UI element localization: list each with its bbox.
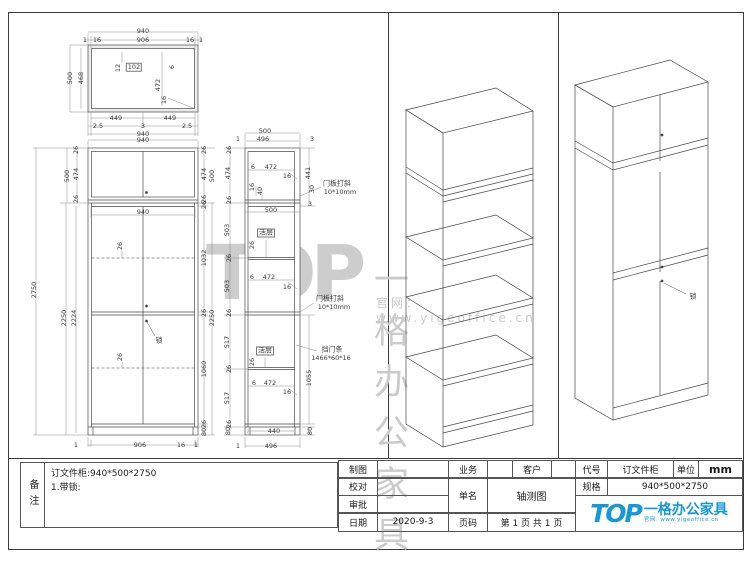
field-customer-label: 客户 <box>512 460 552 478</box>
dim-label: 1 <box>83 37 87 44</box>
dim-label: 26 <box>226 196 233 204</box>
dim-label: 门板打斜 <box>316 296 344 303</box>
dim-label: 80 <box>225 427 232 435</box>
dim-label: 1060 <box>201 361 208 378</box>
field-drafter-value <box>377 460 449 478</box>
dim-label: 503 <box>224 280 231 292</box>
dim-label: 活层 <box>257 229 275 238</box>
field-code-value: 订文件柜 <box>607 460 674 478</box>
notes-label: 备注 <box>21 463 45 527</box>
field-date-value: 2020-9-3 <box>377 513 449 533</box>
dim-label: 474 <box>201 168 208 180</box>
dim-label: 472 <box>155 79 162 91</box>
dim-label: 16 <box>177 442 185 449</box>
dim-label: 2.5 <box>93 123 103 130</box>
drawing-sheet: TOP 一格办公家具 官网：www.yigeoffice.cn <box>0 0 750 562</box>
dim-label: 12 <box>115 64 122 72</box>
dim-label: 16 <box>161 96 168 104</box>
field-approver-value <box>377 495 449 513</box>
dim-label: 496 <box>265 443 277 450</box>
dim-label: 26 <box>73 195 80 203</box>
dim-label: 10*10mm <box>324 189 356 196</box>
dim-label: 80 <box>201 428 208 436</box>
dim-label: 2750 <box>31 282 38 299</box>
dim-label: 468 <box>78 72 85 84</box>
dim-label: 1 <box>74 442 78 449</box>
company-logo-text: TOP <box>590 501 641 526</box>
dim-label: 挡门条 <box>322 347 343 354</box>
notes-box: 备注 订文件柜:940*500*2750 1.带锁: <box>20 462 338 528</box>
dim-label: 2250 <box>209 310 216 327</box>
dim-label: 6 <box>251 164 255 171</box>
dim-label: 活层 <box>256 347 274 356</box>
field-name-label: 单名 <box>448 478 488 514</box>
dim-label: 472 <box>264 380 276 387</box>
dim-label: 16 <box>249 183 256 191</box>
dim-label: 1032 <box>201 250 208 267</box>
notes-line-2: 1.带锁: <box>51 482 156 496</box>
dim-label: 3 <box>308 201 312 208</box>
dim-label: 26 <box>201 201 208 209</box>
dim-label: 16 <box>283 173 291 180</box>
dim-label: 26 <box>226 365 233 373</box>
dim-label: 517 <box>224 336 231 348</box>
dim-label: 500 <box>265 207 277 214</box>
dim-label: 门板打斜 <box>323 181 351 188</box>
dim-label: 26 <box>117 353 124 361</box>
field-code-label: 代号 <box>575 460 608 478</box>
dim-label: 26 <box>226 254 233 262</box>
dim-label: 940 <box>137 209 149 216</box>
dim-label: 500 <box>209 170 216 182</box>
dim-label: 449 <box>110 115 122 122</box>
notes-text: 订文件柜:940*500*2750 1.带锁: <box>51 468 156 495</box>
titleblock-logo-cell: TOP 一格办公家具 官网: www.yigeoffice.cn <box>575 495 743 532</box>
dim-label: 10*10mm <box>318 304 350 311</box>
dim-label: 1 <box>194 442 198 449</box>
dim-label: 503 <box>224 224 231 236</box>
dim-label: 440 <box>268 428 280 435</box>
dim-label: 30 <box>309 185 316 193</box>
field-business-value <box>487 460 513 478</box>
dim-label: 26 <box>117 242 124 250</box>
field-page-value: 第 1 页 共 1 页 <box>487 513 576 533</box>
dim-label: 16 <box>93 37 101 44</box>
dim-label: 40 <box>257 187 264 195</box>
dim-label: 26 <box>201 309 208 317</box>
dim-label: 锁 <box>156 338 163 345</box>
dim-label: 102 <box>126 63 142 72</box>
dim-label: 锁 <box>690 294 697 301</box>
field-unit-label: 单位 <box>673 460 699 478</box>
dim-label: 441 <box>305 167 312 179</box>
field-checker-value <box>377 478 449 496</box>
dim-label: 26 <box>201 146 208 154</box>
field-spec-value: 940*500*2750 <box>607 478 743 496</box>
dim-label: 1466*60*16 <box>311 355 351 362</box>
dim-label: 496 <box>257 136 269 143</box>
dim-label: 16 <box>186 37 194 44</box>
dim-label: 6 <box>169 65 176 69</box>
dim-label: 1 <box>199 37 203 44</box>
dim-label: 3 <box>141 123 145 130</box>
dim-label: 906 <box>134 442 146 449</box>
field-spec-label: 规格 <box>575 478 608 496</box>
field-checker-label: 校对 <box>338 478 378 496</box>
dim-label: 6 <box>250 274 254 281</box>
dim-label: 3 <box>310 136 314 143</box>
dim-label: 474 <box>73 168 80 180</box>
company-logo: TOP 一格办公家具 官网: www.yigeoffice.cn <box>590 501 728 526</box>
dim-label: 472 <box>265 164 277 171</box>
field-drafter-label: 制图 <box>338 460 378 478</box>
dim-label: 26 <box>73 146 80 154</box>
notes-line-1: 订文件柜:940*500*2750 <box>51 468 156 482</box>
dim-label: 517 <box>224 392 231 404</box>
dim-label: 6 <box>252 380 256 387</box>
field-business-label: 业务 <box>448 460 488 478</box>
company-brand-name: 一格办公家具 <box>644 503 728 517</box>
dim-label: 449 <box>164 115 176 122</box>
dim-label: 1 <box>236 136 240 143</box>
dim-label: 26 <box>226 146 233 154</box>
dim-label: 16 <box>283 284 291 291</box>
dim-label: 26 <box>249 358 256 366</box>
dim-label: 1055 <box>306 370 313 387</box>
field-page-label: 页码 <box>448 513 488 533</box>
dim-label: 474 <box>225 167 232 179</box>
field-date-label: 日期 <box>338 513 378 533</box>
dim-label: 940 <box>137 28 149 35</box>
dim-label: 472 <box>263 274 275 281</box>
field-customer-value <box>551 460 576 478</box>
dim-label: 1 <box>236 443 240 450</box>
field-approver-label: 审批 <box>338 495 378 513</box>
dim-label: 940 <box>137 137 149 144</box>
dim-label: 2250 <box>61 310 68 327</box>
company-url: 官网: www.yigeoffice.cn <box>644 518 728 524</box>
dim-label: 500 <box>67 72 74 84</box>
dim-label: 80 <box>307 427 314 435</box>
dim-label: 2.5 <box>182 123 192 130</box>
dim-label: 500 <box>64 170 71 182</box>
dim-label: 500 <box>259 128 271 135</box>
field-name-value: 轴测图 <box>487 478 576 514</box>
dim-label: 906 <box>137 37 149 44</box>
dim-label: 26 <box>226 309 233 317</box>
dim-label: 2224 <box>71 310 78 327</box>
field-unit-value: mm <box>698 460 743 478</box>
dim-label: 26 <box>249 241 256 249</box>
dim-label: 16 <box>283 389 291 396</box>
